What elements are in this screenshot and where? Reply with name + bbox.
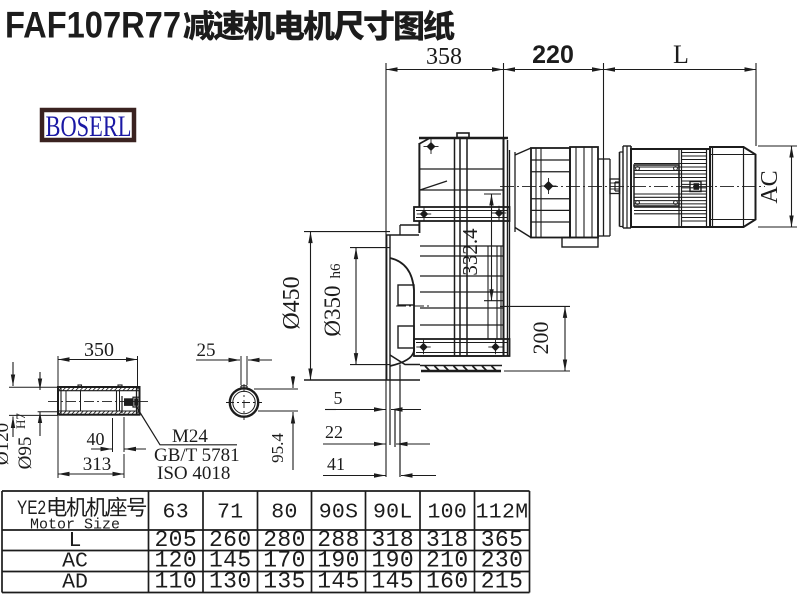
svg-text:H7: H7 <box>13 413 28 429</box>
svg-text:358: 358 <box>426 44 462 70</box>
svg-text:112M: 112M <box>476 501 529 525</box>
svg-text:ISO 4018: ISO 4018 <box>157 463 230 484</box>
svg-text:L: L <box>673 40 689 69</box>
svg-text:40: 40 <box>87 429 105 449</box>
svg-text:220: 220 <box>532 41 574 69</box>
svg-text:200: 200 <box>528 322 553 355</box>
svg-text:22: 22 <box>325 422 343 442</box>
svg-text:80: 80 <box>271 501 297 525</box>
svg-text:41: 41 <box>327 454 345 474</box>
svg-text:145: 145 <box>371 569 414 595</box>
svg-text:350: 350 <box>84 339 114 361</box>
svg-text:Ø120: Ø120 <box>0 423 13 465</box>
svg-text:100: 100 <box>427 501 467 525</box>
svg-text:M24: M24 <box>172 426 208 447</box>
svg-text:95.4: 95.4 <box>268 433 287 463</box>
svg-text:110: 110 <box>154 569 197 595</box>
svg-text:215: 215 <box>481 569 524 595</box>
svg-text:Ø450: Ø450 <box>279 276 305 329</box>
svg-text:h6: h6 <box>328 263 344 279</box>
svg-text:BOSERL: BOSERL <box>46 110 132 143</box>
svg-text:313: 313 <box>83 454 112 475</box>
svg-text:135: 135 <box>263 569 306 595</box>
svg-text:Ø95: Ø95 <box>15 437 36 470</box>
svg-text:63: 63 <box>163 501 189 525</box>
svg-text:145: 145 <box>317 569 360 595</box>
svg-text:AD: AD <box>62 571 88 595</box>
svg-text:90S: 90S <box>319 501 359 525</box>
svg-text:25: 25 <box>197 340 216 361</box>
svg-text:Ø350: Ø350 <box>320 285 345 336</box>
svg-text:5: 5 <box>334 388 343 408</box>
svg-text:130: 130 <box>209 569 252 595</box>
svg-text:FAF107R77: FAF107R77 <box>5 5 181 46</box>
svg-text:332.4: 332.4 <box>458 228 482 276</box>
svg-text:71: 71 <box>217 501 243 525</box>
svg-text:90L: 90L <box>373 501 413 525</box>
svg-text:160: 160 <box>426 569 469 595</box>
